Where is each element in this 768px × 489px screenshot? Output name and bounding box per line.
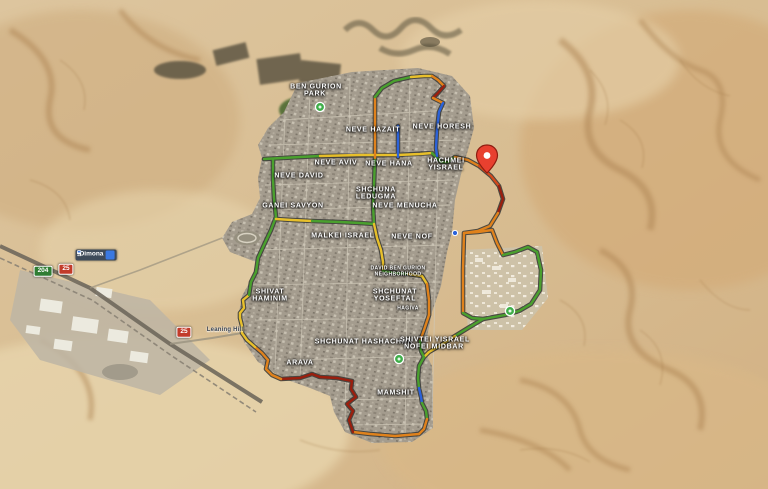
blue-waypoint-dot[interactable]: [452, 230, 457, 235]
label-neve-menucha: NEVE MENUCHA: [372, 203, 437, 210]
label-ben-gurion-park-1: BEN GURION: [290, 84, 342, 91]
green-poi-south[interactable]: [394, 354, 403, 363]
label-hashachar: SHCHUNAT HASHACHAR: [315, 339, 413, 346]
terrain: [0, 0, 768, 489]
label-david-ben-gurion-2: NEIGHBORHOOD: [375, 273, 422, 278]
train-station-label[interactable]: Dimona: [76, 250, 117, 261]
label-shivat-2: HAMINIM: [252, 296, 288, 303]
label-neve-hazait: NEVE HAZAIT: [346, 127, 400, 134]
label-neve-hana: NEVE HANA: [365, 161, 413, 168]
map-canvas: [0, 0, 768, 489]
label-shivtei-1: SHIVTEI YISRAEL: [400, 337, 470, 344]
label-neve-david: NEVE DAVID: [274, 173, 323, 180]
label-ben-gurion-park-2: PARK: [304, 91, 326, 98]
road-shield-25-station: 25: [176, 327, 191, 338]
green-poi-park[interactable]: [315, 102, 324, 111]
label-malkei-israel: MALKEI ISRAEL: [311, 233, 375, 240]
label-ledugma-2: LEDUGMA: [356, 194, 396, 201]
road-shield-25-west: 25: [58, 264, 73, 275]
label-hachmei-2: YISRAEL: [428, 165, 463, 172]
label-shivtei-2: NOFEI MIDBAR: [404, 344, 464, 351]
label-arava: ARAVA: [286, 360, 313, 367]
label-shivat-1: SHIVAT: [256, 289, 285, 296]
label-mamshit: MAMSHIT: [377, 390, 415, 397]
green-poi-east[interactable]: [505, 306, 514, 315]
satellite-map[interactable]: BEN GURION PARK NEVE HAZAIT NEVE HORESH …: [0, 0, 768, 489]
train-station-name: Dimona: [80, 252, 104, 259]
label-hill: Leaning Hill: [207, 327, 243, 333]
label-ganei-savyon: GANEI SAVYON: [262, 203, 324, 210]
train-icon: [105, 251, 114, 260]
label-hagiva: HAGIVA: [397, 307, 418, 312]
label-neve-nof: NEVE NOF: [391, 234, 432, 241]
road-shield-204: 204: [34, 266, 53, 277]
label-neve-horesh: NEVE HORESH: [413, 124, 472, 131]
label-yoseftal-1: SHCHUNAT: [373, 289, 417, 296]
label-ledugma-1: SHCHUNA: [356, 187, 396, 194]
label-neve-aviv: NEVE AVIV: [315, 160, 358, 167]
label-hachmei-1: HACHMEI: [427, 158, 465, 165]
label-yoseftal-2: YOSEFTAL: [374, 296, 416, 303]
